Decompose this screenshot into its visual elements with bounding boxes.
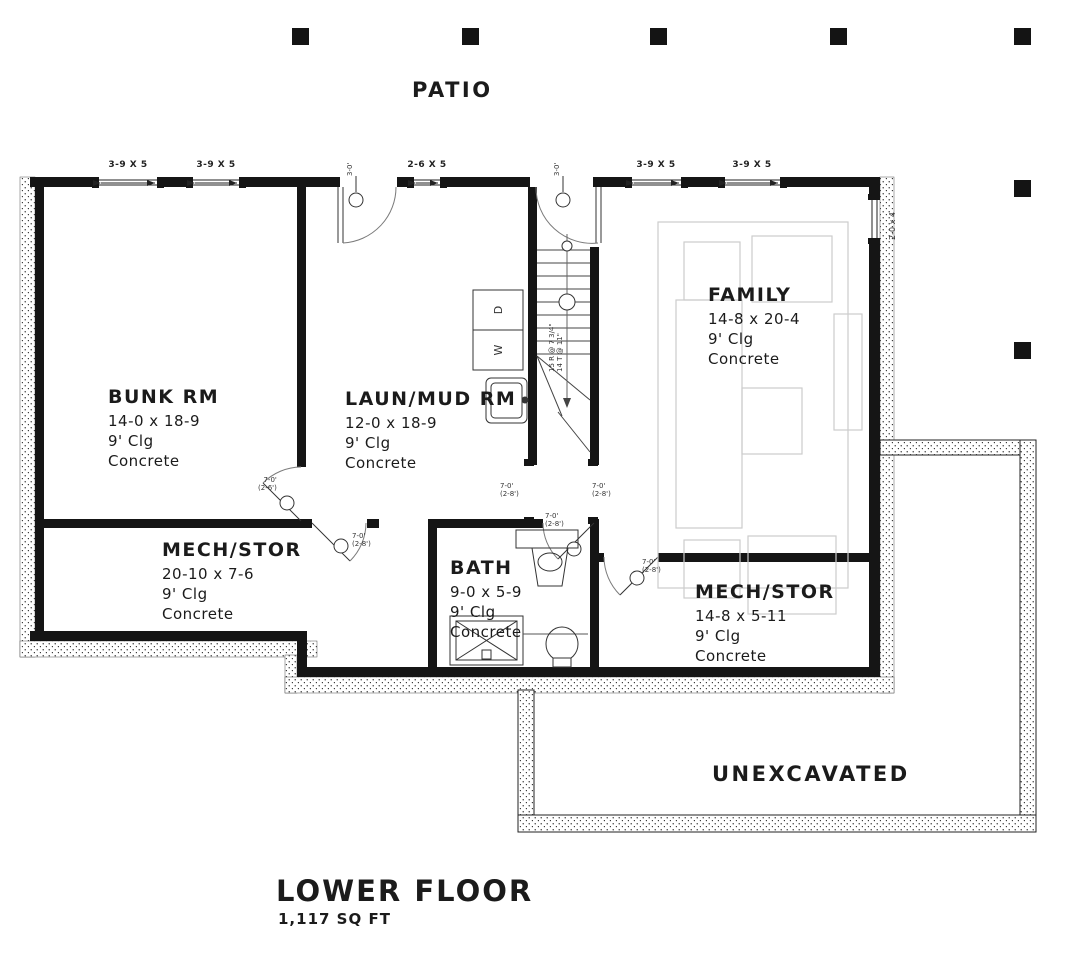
door-tag-top-1: 3-0': [346, 163, 354, 176]
door-tag-top-2: 3-0': [553, 163, 561, 176]
window-label-3: 2-6 X 5: [407, 160, 446, 170]
page-title: LOWER FLOOR: [276, 874, 533, 908]
toilet: [546, 627, 578, 661]
window-label-right: 2-0 x 4: [888, 212, 898, 240]
room-label-laundry: LAUN/MUD RM 12-0 x 18-9 9' Clg Concrete: [345, 387, 516, 473]
room-label-bath: BATH 9-0 x 5-9 9' Clg Concrete: [450, 556, 522, 642]
window-label-5: 3-9 X 5: [732, 160, 771, 170]
window-label-4: 3-9 X 5: [636, 160, 675, 170]
door-tag-mech-left: 7-0' (2-8'): [352, 532, 371, 549]
room-label-bunk: BUNK RM 14-0 x 18-9 9' Clg Concrete: [108, 385, 219, 471]
door-tag-bunk: 7-0' (2-6'): [258, 476, 277, 493]
area-rug: [658, 222, 848, 588]
page-area: 1,117 SQ FT: [278, 910, 391, 928]
room-label-family: FAMILY 14-8 x 20-4 9' Clg Concrete: [708, 283, 800, 369]
floor-plan-drawing: D W: [0, 0, 1071, 953]
stair-note: 15 R @ 7 3/4" 14 T @ 11": [548, 323, 565, 372]
floor-plan: D W: [0, 0, 1071, 953]
opening-tag-hall-right: 7-0' (2-8'): [592, 482, 611, 499]
unexcavated-label: UNEXCAVATED: [712, 762, 910, 786]
door-tag-mech-right: 7-0' (2-8'): [642, 558, 661, 575]
door-tag-bath: 7-0' (2-8'): [545, 512, 564, 529]
windows: [99, 180, 877, 238]
dryer-letter: D: [492, 306, 505, 314]
opening-tag-hall-left: 7-0' (2-8'): [500, 482, 519, 499]
patio-posts: [292, 28, 1031, 359]
patio-label: PATIO: [412, 78, 493, 102]
washer-letter: W: [492, 344, 505, 355]
room-label-mech-left: MECH/STOR 20-10 x 7-6 9' Clg Concrete: [162, 538, 302, 624]
window-label-1: 3-9 X 5: [108, 160, 147, 170]
window-label-2: 3-9 X 5: [196, 160, 235, 170]
room-label-mech-right: MECH/STOR 14-8 x 5-11 9' Clg Concrete: [695, 580, 835, 666]
